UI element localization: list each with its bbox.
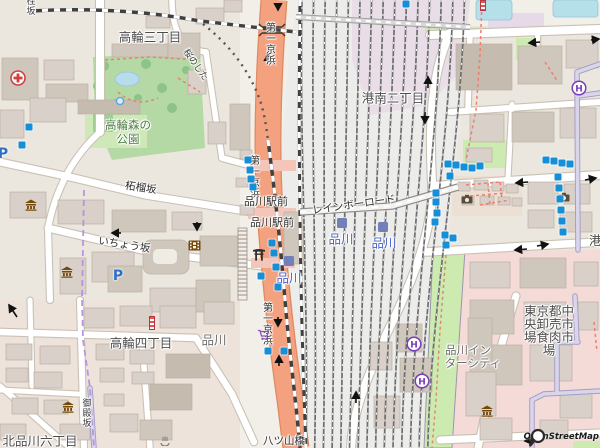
bus-stop-icon <box>461 164 468 171</box>
road-label-yatsuyamabashi: 八ツ山橋 <box>263 436 305 447</box>
bus-stop-icon <box>434 210 441 217</box>
bus-stop-icon <box>555 174 562 181</box>
bus-stop-icon <box>558 207 565 214</box>
bus-stop-icon <box>557 196 564 203</box>
map-base-layer <box>0 0 600 448</box>
crossing-label-shinagawa-ekimae-2: 品川駅前 <box>250 217 294 229</box>
osm-magnifier-icon <box>529 427 551 448</box>
bus-stop-icon <box>265 348 272 355</box>
bus-stop-icon <box>247 167 254 174</box>
parking-icon-1: P <box>0 146 8 162</box>
bus-stop-icon <box>543 157 550 164</box>
district-label-takanawa3: 高輪三丁目 <box>119 30 182 43</box>
bus-stop-icon <box>560 229 567 236</box>
bus-stop-icon <box>477 163 484 170</box>
bus-stop-icon <box>567 161 574 168</box>
station-label-shinagawa-2: 品川 <box>371 236 396 249</box>
svg-text:H: H <box>575 84 583 94</box>
bus-stop-icon <box>556 185 563 192</box>
station-label-shinagawa-1: 品川 <box>328 232 353 245</box>
bus-stop-icon <box>271 250 278 257</box>
bus-stop-icon <box>445 161 452 168</box>
bus-stop-icon <box>26 124 33 131</box>
map-canvas[interactable]: 高輪三丁目 港南二丁目 高輪四丁目 北品川六丁目 品川 港 高輪森の 公園 柘榴… <box>0 0 600 448</box>
bus-stop-icon <box>559 218 566 225</box>
bus-stop-icon <box>447 173 454 180</box>
road-label-gotenzaka: 御殿坂 <box>80 398 89 428</box>
bus-stop-icon <box>273 264 280 271</box>
bus-stop-icon <box>469 165 476 172</box>
station-icon-shinagawa-3 <box>284 256 294 266</box>
district-label-minato-partial: 港 <box>589 234 600 247</box>
bus-stop-icon <box>258 273 265 280</box>
bus-stop-icon <box>551 158 558 165</box>
bus-stop-icon <box>453 162 460 169</box>
bus-stop-icon <box>433 199 440 206</box>
park-label-line1: 高輪森の <box>105 119 151 131</box>
bus-stop-icon <box>442 232 449 239</box>
bus-stop-icon <box>19 142 26 149</box>
roadworks-icon-1 <box>149 316 155 330</box>
district-label-shinagawa: 品川 <box>201 333 226 346</box>
bus-stop-icon <box>403 1 410 8</box>
market-label-line4: 場 <box>543 343 556 356</box>
bus-stop-icon <box>275 284 282 291</box>
roadworks-icon-2 <box>480 0 486 11</box>
osm-attribution[interactable]: OpenStreetMap <box>529 427 599 447</box>
road-label-katsurazaka: 桂坂 <box>24 0 33 16</box>
station-icon-shinagawa-1 <box>337 218 347 228</box>
station-icon-shinagawa-2 <box>378 222 388 232</box>
bus-stop-icon <box>559 160 566 167</box>
district-label-takanawa4: 高輪四丁目 <box>110 336 173 349</box>
place-label-intercity-line1: 品川イン <box>445 344 491 356</box>
park-label-line2: 公園 <box>117 133 140 145</box>
bus-stop-icon <box>443 242 450 249</box>
bus-stop-icon <box>248 176 255 183</box>
road-label-daiichi-keihin-1: 第一京浜 <box>263 22 274 66</box>
place-label-intercity-line2: ターシティ <box>445 357 502 369</box>
bus-stop-icon <box>450 235 457 242</box>
bus-stop-icon <box>250 184 257 191</box>
svg-text:H: H <box>410 340 418 350</box>
crossing-label-shinagawa-ekimae-1: 品川駅前 <box>244 196 288 208</box>
district-label-konan2: 港南二丁目 <box>362 91 425 104</box>
bus-stop-icon <box>245 157 252 164</box>
svg-text:H: H <box>418 377 426 387</box>
bus-stop-icon <box>269 240 276 247</box>
bus-stop-icon <box>432 219 439 226</box>
station-steps <box>238 228 247 300</box>
district-label-kitashinagawa6: 北品川六丁目 <box>2 434 77 447</box>
bus-stop-icon <box>433 190 440 197</box>
parking-icon-2: P <box>113 268 123 284</box>
bus-stop-icon <box>281 348 288 355</box>
